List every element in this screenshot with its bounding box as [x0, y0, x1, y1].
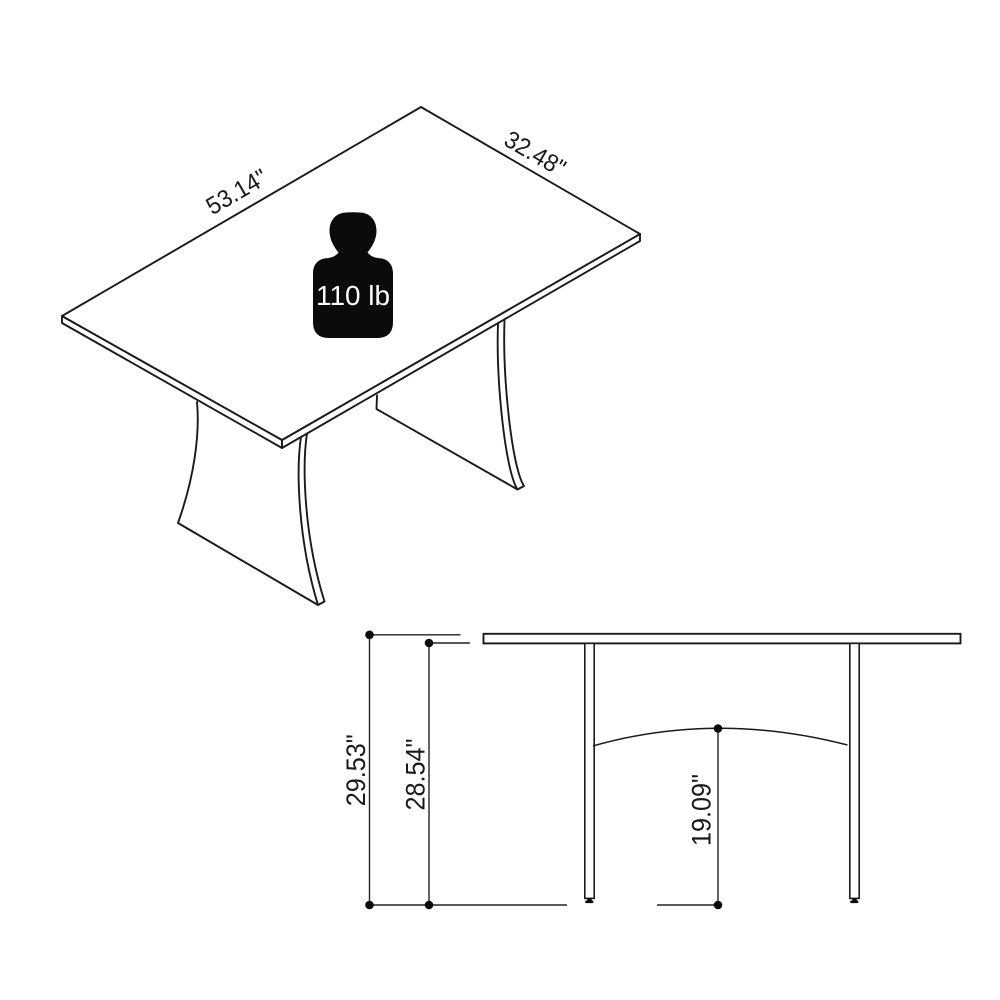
svg-text:29.53": 29.53" [341, 734, 371, 806]
svg-text:28.54": 28.54" [400, 739, 430, 811]
svg-text:110 lb: 110 lb [316, 280, 390, 311]
svg-text:19.09": 19.09" [686, 774, 716, 846]
